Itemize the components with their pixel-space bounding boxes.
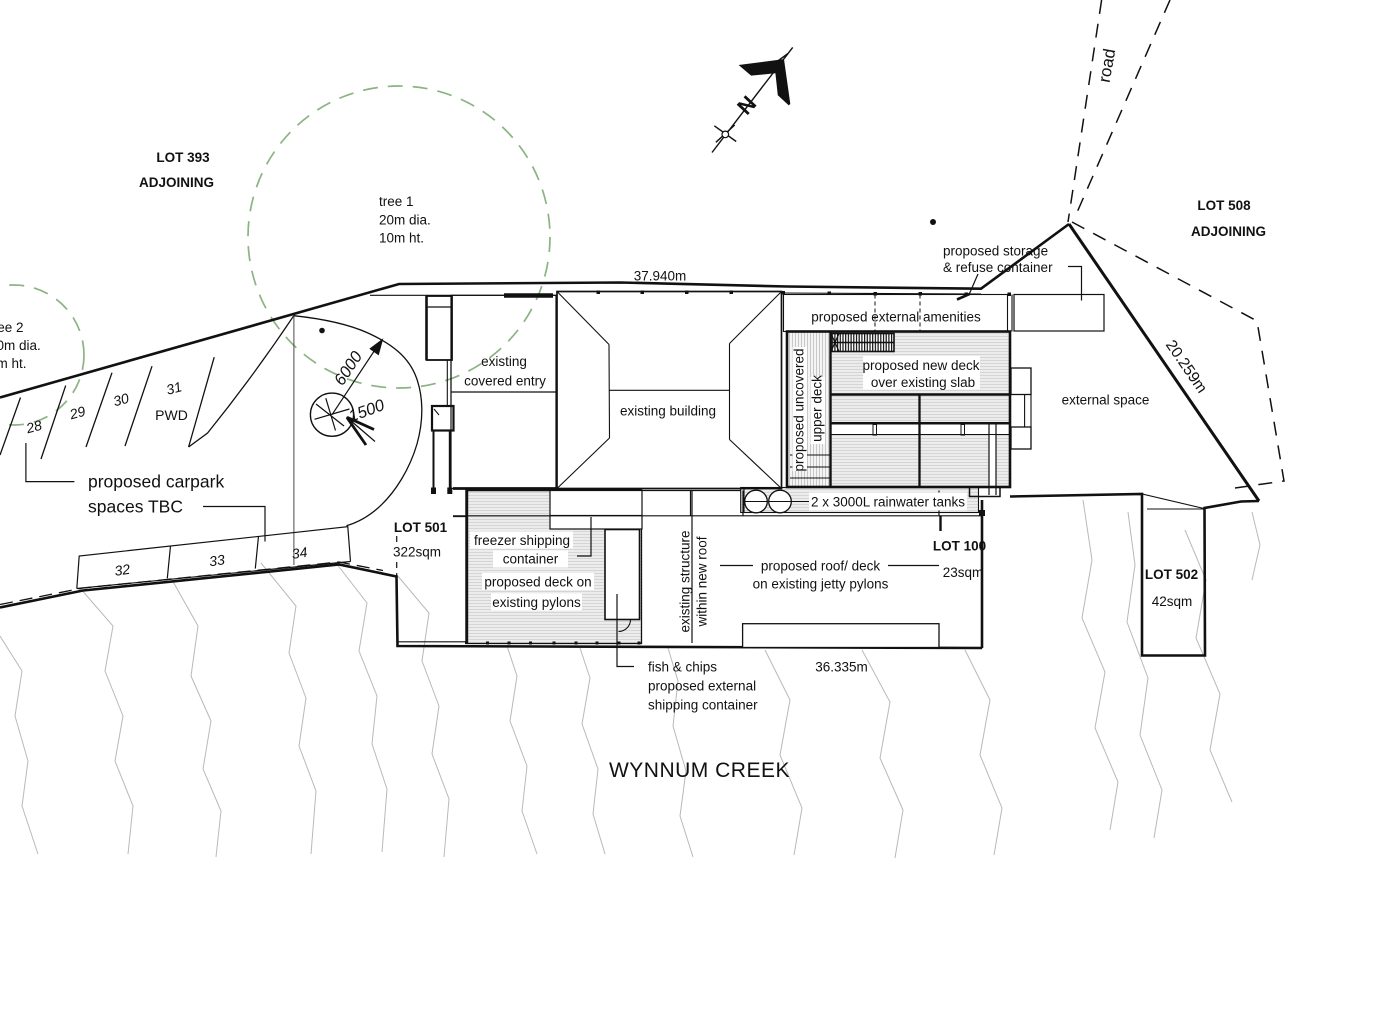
svg-text:on existing jetty pylons: on existing jetty pylons <box>753 577 889 592</box>
svg-text:10m ht.: 10m ht. <box>379 231 424 246</box>
svg-text:upper deck: upper deck <box>810 375 825 442</box>
svg-text:freezer shipping: freezer shipping <box>474 533 570 548</box>
svg-text:LOT 100: LOT 100 <box>933 539 986 554</box>
svg-text:33: 33 <box>208 551 226 569</box>
svg-text:existing: existing <box>481 354 527 369</box>
svg-text:1500: 1500 <box>346 396 387 426</box>
svg-text:LOT 393: LOT 393 <box>156 150 210 165</box>
svg-text:covered entry: covered entry <box>464 374 546 389</box>
svg-text:2 x 3000L rainwater tanks: 2 x 3000L rainwater tanks <box>811 495 965 510</box>
svg-text:external space: external space <box>1062 393 1150 408</box>
svg-text:PWD: PWD <box>155 407 188 423</box>
svg-text:20m dia.: 20m dia. <box>379 213 431 228</box>
svg-text:proposed new deck: proposed new deck <box>862 358 979 373</box>
svg-text:tree 2: tree 2 <box>0 320 24 335</box>
svg-text:ADJOINING: ADJOINING <box>1191 224 1266 239</box>
svg-text:37.940m: 37.940m <box>634 269 687 284</box>
svg-text:proposed storage: proposed storage <box>943 243 1048 258</box>
svg-text:shipping container: shipping container <box>648 698 758 713</box>
svg-text:spaces TBC: spaces TBC <box>88 497 183 517</box>
svg-text:36.335m: 36.335m <box>815 660 868 675</box>
svg-text:29: 29 <box>67 403 87 423</box>
svg-text:322sqm: 322sqm <box>393 545 441 560</box>
svg-text:ADJOINING: ADJOINING <box>139 175 214 190</box>
svg-text:20.259m: 20.259m <box>1162 337 1210 396</box>
svg-text:& refuse container: & refuse container <box>943 260 1053 275</box>
svg-text:31: 31 <box>164 378 183 397</box>
svg-text:42sqm: 42sqm <box>1152 594 1193 609</box>
svg-text:over existing slab: over existing slab <box>871 375 975 390</box>
svg-text:within new roof: within new roof <box>695 536 710 627</box>
svg-text:proposed deck on: proposed deck on <box>484 575 591 590</box>
svg-text:LOT 508: LOT 508 <box>1197 198 1251 213</box>
svg-text:existing pylons: existing pylons <box>492 595 581 610</box>
svg-text:fish & chips: fish & chips <box>648 660 717 675</box>
svg-text:20m dia.: 20m dia. <box>0 338 41 353</box>
svg-text:road: road <box>1095 47 1120 84</box>
svg-text:32: 32 <box>113 561 131 579</box>
svg-text:proposed roof/ deck: proposed roof/ deck <box>761 559 881 574</box>
svg-text:proposed external: proposed external <box>648 679 756 694</box>
svg-text:LOT 501: LOT 501 <box>394 520 448 535</box>
svg-text:LOT 502: LOT 502 <box>1145 567 1198 582</box>
svg-text:container: container <box>503 552 559 567</box>
svg-text:proposed carpark: proposed carpark <box>88 472 224 492</box>
svg-text:proposed uncovered: proposed uncovered <box>792 348 807 471</box>
svg-text:proposed external amenities: proposed external amenities <box>811 309 981 324</box>
svg-text:existing building: existing building <box>620 404 716 419</box>
svg-text:tree 1: tree 1 <box>379 194 414 209</box>
svg-text:30: 30 <box>111 390 130 410</box>
svg-text:23sqm: 23sqm <box>943 565 984 580</box>
svg-text:existing structure: existing structure <box>678 530 693 632</box>
svg-text:WYNNUM CREEK: WYNNUM CREEK <box>609 759 790 782</box>
svg-text:8m ht.: 8m ht. <box>0 356 27 371</box>
svg-text:34: 34 <box>291 544 309 562</box>
